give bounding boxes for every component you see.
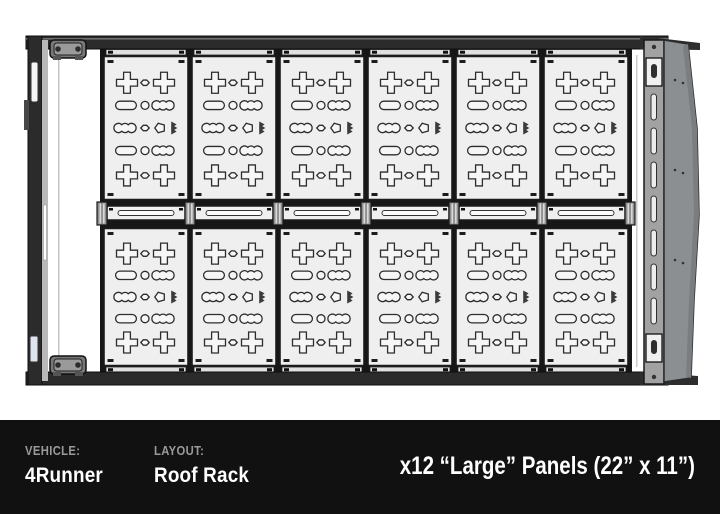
edge-crossbar-strip <box>194 50 274 56</box>
edge-crossbar-strip <box>370 50 450 56</box>
crossbar-connector <box>537 202 547 225</box>
mid-crossbar <box>547 206 625 220</box>
mid-crossbar <box>195 206 273 220</box>
roof-panel <box>280 229 364 366</box>
edge-crossbar-strip <box>106 50 186 56</box>
edge-crossbar-strip <box>282 50 362 56</box>
mid-crossbar <box>371 206 449 220</box>
rack-diagram-svg <box>0 0 720 420</box>
layout-value: Roof Rack <box>154 465 249 487</box>
rack-diagram <box>0 0 720 420</box>
panel-spec-text: x12 “Large” Panels (22” x 11”) <box>400 452 695 481</box>
rail-clamp-block-rear <box>646 334 662 362</box>
rail-clamp-block-front <box>646 58 662 86</box>
crossbar-connector <box>361 202 371 225</box>
vehicle-spec: VEHICLE: 4Runner <box>25 444 103 487</box>
roof-panel <box>544 229 628 366</box>
crossbar-connector <box>449 202 459 225</box>
left-side-rail <box>24 36 60 385</box>
left-clamp-front <box>50 40 86 60</box>
mid-crossbar <box>107 206 185 220</box>
roof-panel <box>456 229 540 366</box>
crossbar-connector <box>625 202 635 225</box>
roof-panel <box>280 57 364 200</box>
crossbar-connector <box>273 202 283 225</box>
roof-panel <box>544 57 628 200</box>
edge-crossbar-strip <box>546 50 626 56</box>
rear-rail <box>26 372 698 385</box>
crossbar-connector <box>97 202 107 225</box>
roof-panel <box>192 57 276 200</box>
crossbar-connector <box>185 202 195 225</box>
left-clamp-rear <box>50 356 86 376</box>
layout-spec: LAYOUT: Roof Rack <box>154 444 249 487</box>
spec-bar: VEHICLE: 4Runner LAYOUT: Roof Rack x12 “… <box>0 420 720 514</box>
layout-label: LAYOUT: <box>154 444 249 458</box>
mid-crossbar <box>459 206 537 220</box>
roof-panel <box>104 229 188 366</box>
page: VEHICLE: 4Runner LAYOUT: Roof Rack x12 “… <box>0 0 720 514</box>
edge-crossbar-strip <box>458 50 538 56</box>
wind-fairing <box>664 40 699 382</box>
rail-edge-line <box>58 55 60 372</box>
roof-panel <box>368 57 452 200</box>
right-slotted-rail <box>636 40 664 384</box>
roof-panel <box>104 57 188 200</box>
vehicle-value: 4Runner <box>25 465 103 487</box>
roof-panel <box>192 229 276 366</box>
roof-panel <box>368 229 452 366</box>
front-rail <box>26 36 700 50</box>
rail-slots <box>651 94 657 324</box>
vehicle-label: VEHICLE: <box>25 444 103 458</box>
mid-crossbar <box>283 206 361 220</box>
roof-panel <box>456 57 540 200</box>
